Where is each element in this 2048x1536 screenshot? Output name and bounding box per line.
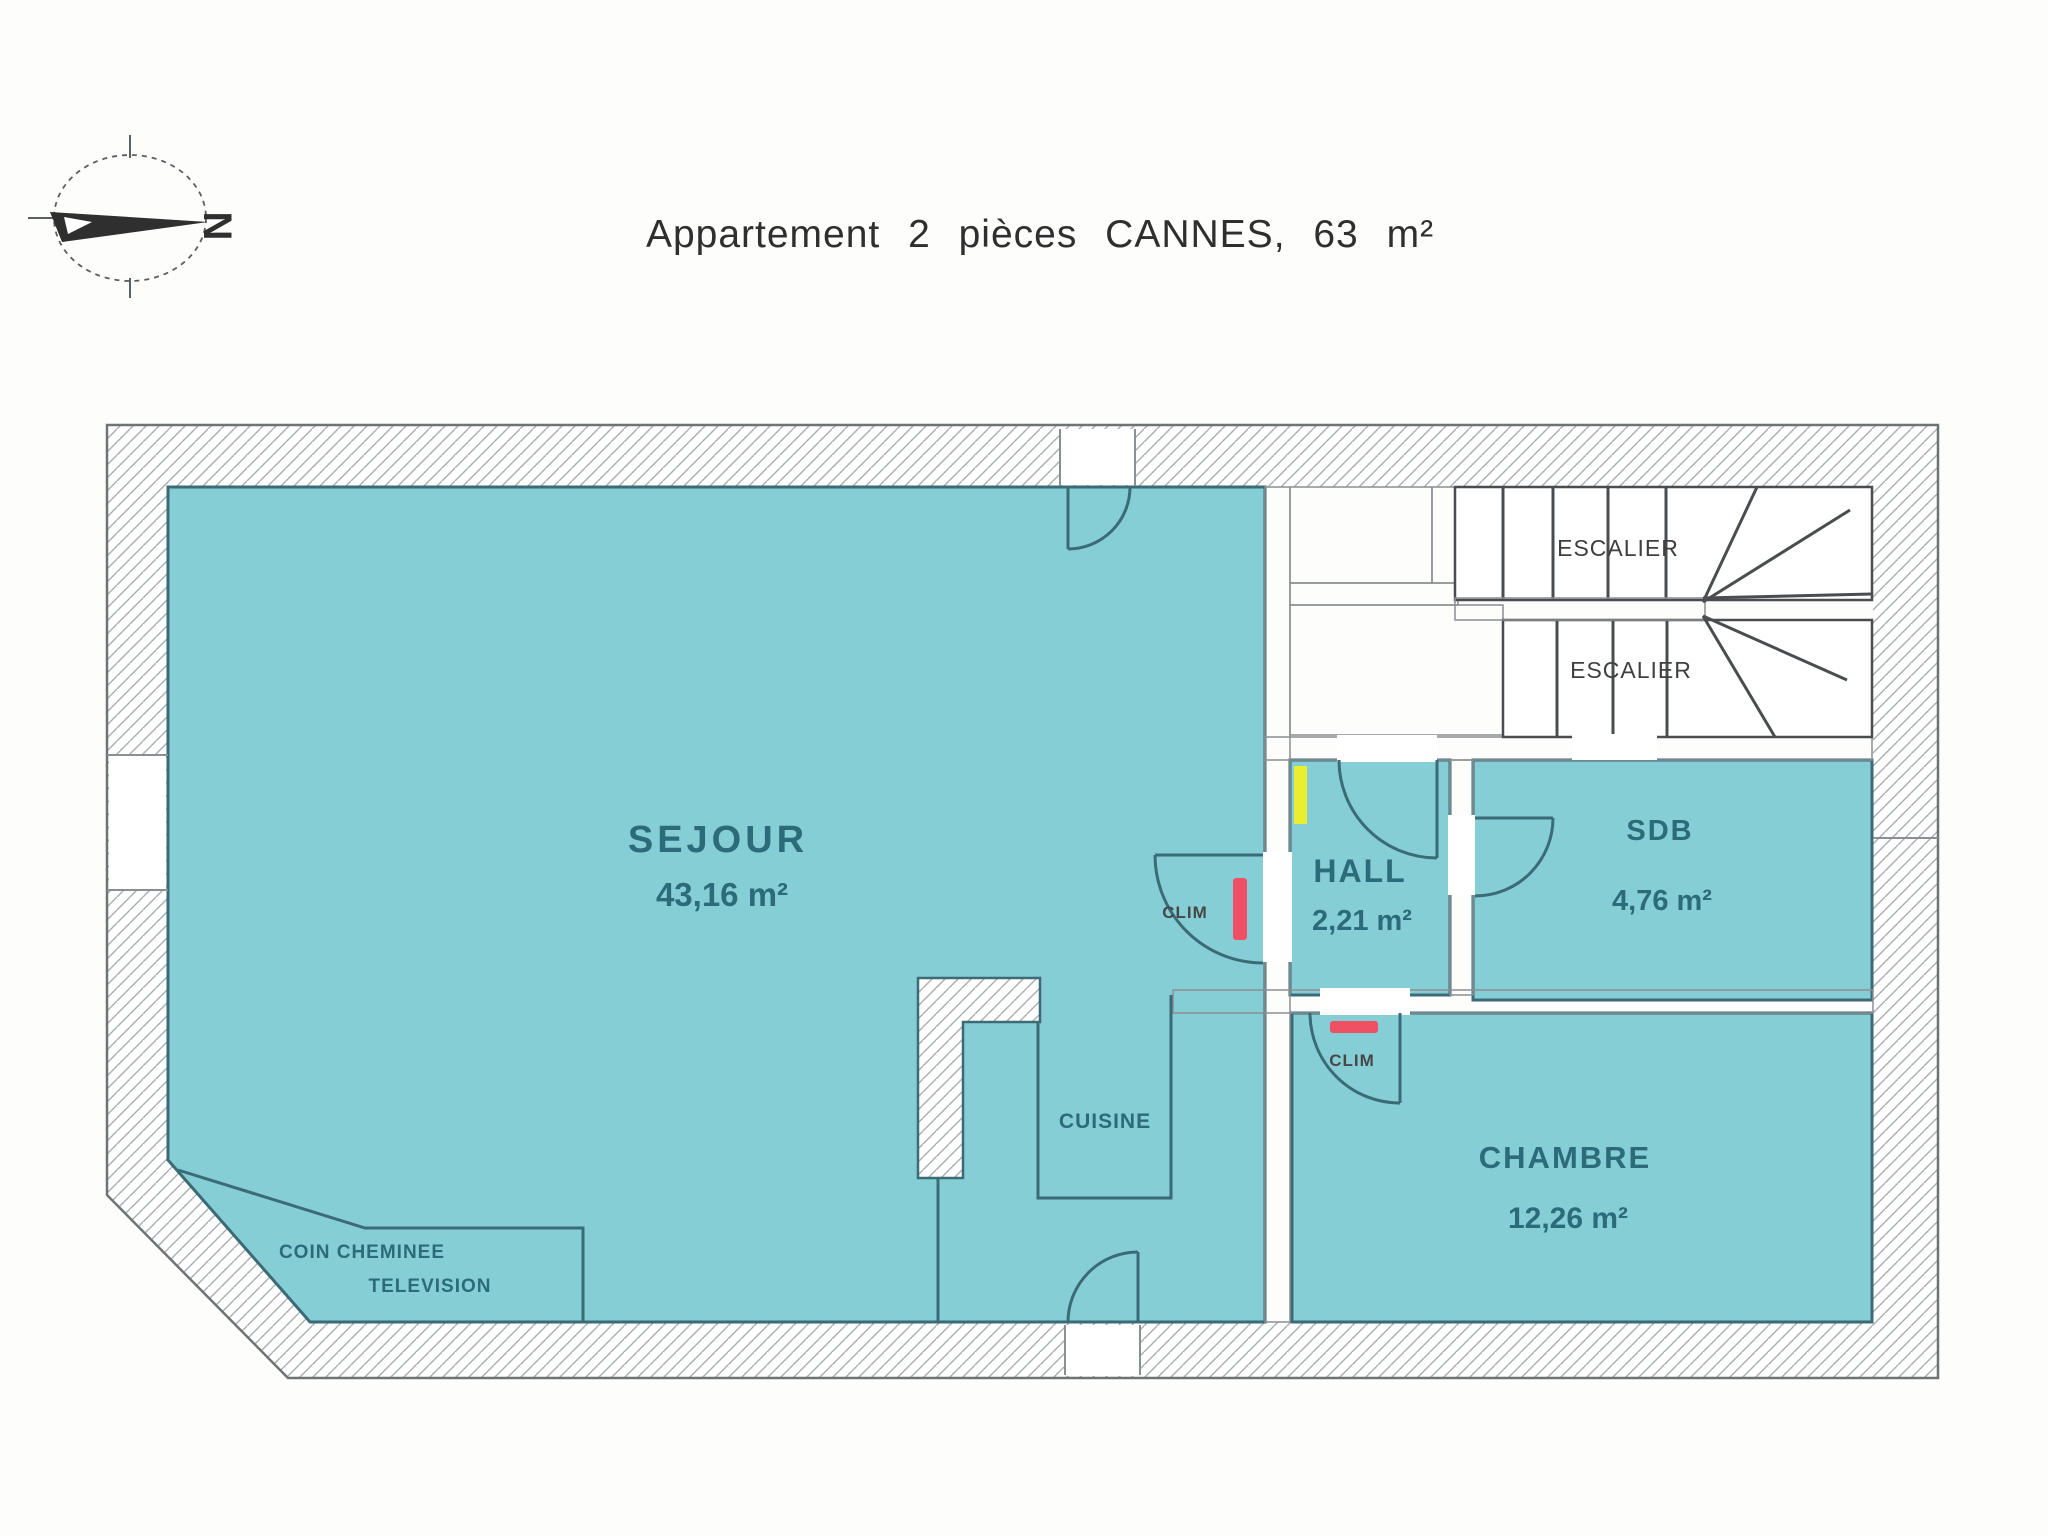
label-clim-sejour: CLIM <box>1162 903 1208 922</box>
label-sdb-area: 4,76 m² <box>1612 885 1712 917</box>
window-left <box>109 756 166 889</box>
label-chambre: CHAMBRE <box>1479 1140 1651 1175</box>
north-label: N <box>195 212 239 241</box>
label-chambre-area: 12,26 m² <box>1508 1202 1628 1235</box>
label-television: TELEVISION <box>369 1276 492 1297</box>
stair-mid-wall <box>1455 598 1705 620</box>
clim-unit-chambre <box>1330 1021 1378 1033</box>
room-sdb <box>1473 760 1872 1000</box>
label-sdb: SDB <box>1626 815 1693 847</box>
label-cuisine: CUISINE <box>1059 1110 1151 1133</box>
electrical-panel-mark <box>1294 766 1307 824</box>
floor-plan-drawing: N Appartement 2 pièces CANNES, 63 m² <box>0 0 2048 1536</box>
label-hall-area: 2,21 m² <box>1312 905 1412 937</box>
label-clim-chambre: CLIM <box>1329 1051 1375 1070</box>
stair-labels: ESCALIER ESCALIER <box>1557 535 1692 683</box>
label-hall: HALL <box>1313 853 1406 889</box>
label-escalier-lower: ESCALIER <box>1570 657 1692 683</box>
plan-title: Appartement 2 pièces CANNES, 63 m² <box>646 213 1434 256</box>
floor-plan-page: N Appartement 2 pièces CANNES, 63 m² <box>0 0 2048 1536</box>
label-escalier-upper: ESCALIER <box>1557 535 1679 561</box>
compass-north-indicator: N <box>28 135 239 298</box>
label-coin-cheminee: COIN CHEMINEE <box>279 1242 445 1263</box>
label-sejour-area: 43,16 m² <box>656 876 788 913</box>
label-sejour: SEJOUR <box>628 819 808 861</box>
clim-unit-sejour <box>1233 878 1247 940</box>
